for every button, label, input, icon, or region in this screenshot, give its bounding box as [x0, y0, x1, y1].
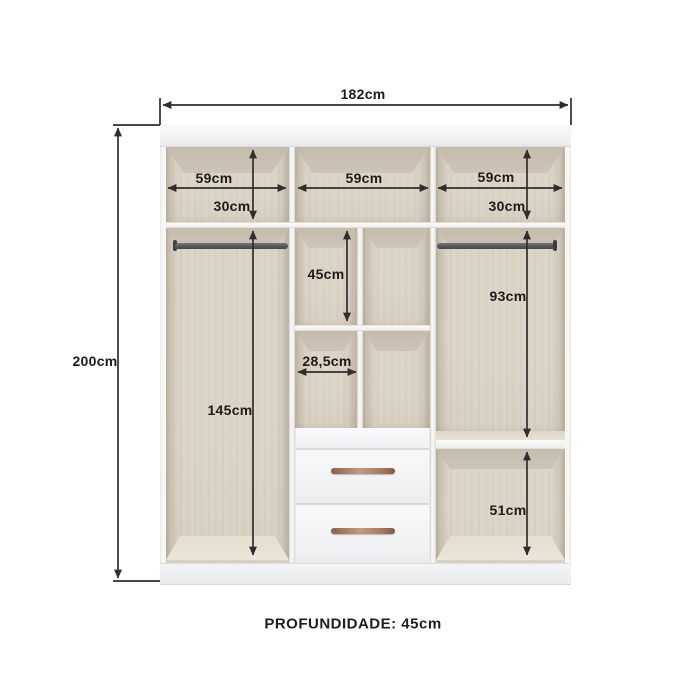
dim-label-right-section-width: 59cm	[477, 169, 514, 185]
depth-label: PROFUNDIDADE: 45cm	[264, 616, 441, 633]
dim-label-total-width: 182cm	[340, 86, 385, 102]
left-hanging-section	[166, 228, 289, 560]
wardrobe-top-panel	[160, 125, 571, 147]
left-hanging-rod	[175, 243, 288, 249]
dim-label-middle-column-width: 28,5cm	[302, 353, 351, 369]
right-shelf-surface	[436, 431, 565, 439]
dim-label-left-top-shelf-height: 30cm	[213, 198, 250, 214]
right-shelf	[436, 439, 565, 449]
drawer-1-handle	[331, 468, 395, 474]
middle-shelf	[295, 325, 430, 331]
top-full-shelf	[166, 222, 565, 228]
drawer-unit-top-band	[296, 428, 429, 450]
dim-label-right-hanging-height: 93cm	[489, 288, 526, 304]
vertical-divider-right	[430, 147, 436, 563]
dim-label-left-section-width: 59cm	[195, 170, 232, 186]
right-hanging-section	[436, 228, 565, 431]
drawer-unit	[295, 428, 430, 563]
dim-label-middle-upper-height: 45cm	[307, 266, 344, 282]
right-rod-bracket	[553, 240, 557, 251]
drawer-2	[296, 507, 429, 563]
drawer-2-handle	[331, 528, 395, 534]
dim-label-right-top-shelf-height: 30cm	[488, 198, 525, 214]
dim-label-total-height: 200cm	[72, 353, 117, 369]
dim-label-left-hanging-height: 145cm	[207, 402, 252, 418]
middle-lower-right-compartment	[363, 331, 430, 428]
dim-label-right-bottom-height: 51cm	[489, 502, 526, 518]
middle-upper-right-compartment	[363, 228, 430, 325]
drawer-1	[296, 450, 429, 505]
middle-lower-left-compartment	[295, 331, 357, 428]
dim-label-middle-section-width: 59cm	[345, 170, 382, 186]
furniture-dimension-diagram: 182cm 200cm 59cm 59cm 59cm 30cm 30cm 45c…	[0, 0, 700, 700]
right-hanging-rod	[437, 243, 555, 249]
wardrobe-base-plinth	[160, 563, 571, 585]
